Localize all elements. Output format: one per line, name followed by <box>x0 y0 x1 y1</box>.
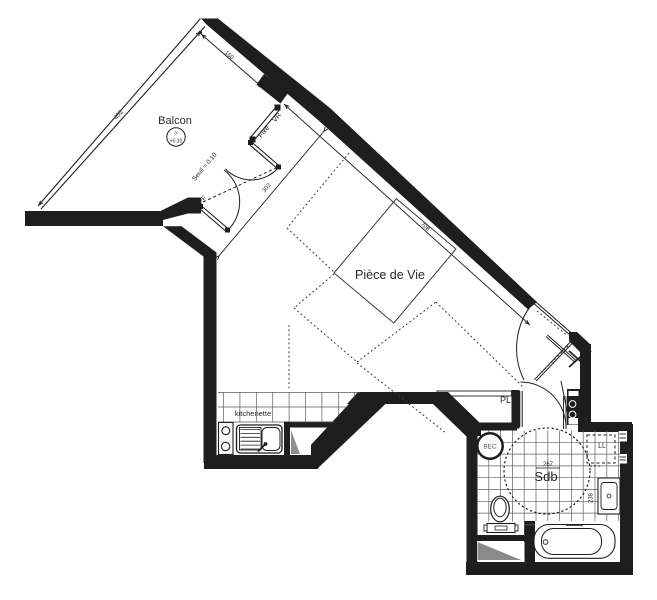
svg-text:Pièce de Vie: Pièce de Vie <box>355 268 425 282</box>
svg-text:238: 238 <box>589 492 595 503</box>
svg-text:BEC: BEC <box>483 444 497 451</box>
svg-text:Balcon: Balcon <box>158 115 192 127</box>
svg-text:+0,10: +0,10 <box>170 139 183 145</box>
svg-text:267: 267 <box>543 462 554 468</box>
svg-text:LL: LL <box>598 443 606 450</box>
svg-text:Sdb: Sdb <box>534 469 557 484</box>
svg-text:PL: PL <box>500 395 511 405</box>
svg-text:kitchenette: kitchenette <box>235 409 271 418</box>
